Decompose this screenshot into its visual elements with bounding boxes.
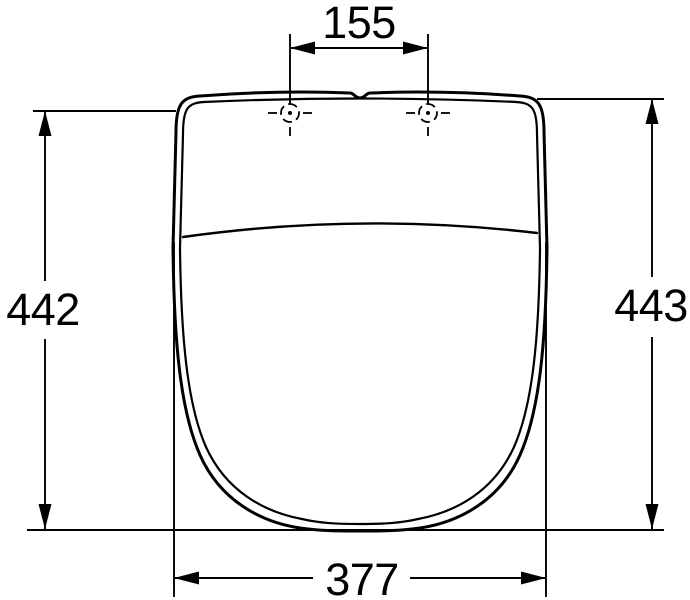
dimension-hinge-spacing: 155 — [290, 0, 428, 104]
dimension-label-height-right: 443 — [614, 280, 688, 331]
dimension-width: 377 — [174, 242, 546, 600]
arrowhead-right — [403, 42, 428, 55]
seat-inner-contour — [180, 99, 540, 525]
drawing-canvas: 155 442 443 — [0, 0, 690, 600]
center-mark-dot — [288, 111, 292, 115]
dimension-label-width: 377 — [325, 554, 399, 600]
dimension-label-hinge-spacing: 155 — [322, 0, 396, 48]
dimension-height-left: 442 — [6, 111, 176, 529]
seat-outer-contour — [173, 92, 547, 531]
dimension-height-right: 443 — [537, 99, 688, 529]
arrowhead-left — [290, 42, 315, 55]
seat-front-edge-curve — [183, 223, 537, 237]
arrowhead-up — [646, 99, 659, 124]
seat-top-view — [173, 92, 547, 531]
arrowhead-down — [646, 504, 659, 529]
arrowhead-down — [39, 504, 52, 529]
center-mark-icon-right — [406, 104, 450, 136]
arrowhead-up — [39, 111, 52, 136]
dimension-label-height-left: 442 — [6, 284, 80, 335]
arrowhead-right — [521, 572, 546, 585]
center-mark-dot — [426, 111, 430, 115]
seat-dimension-drawing: 155 442 443 — [0, 0, 690, 600]
arrowhead-left — [174, 572, 199, 585]
center-mark-icon-left — [268, 104, 312, 136]
